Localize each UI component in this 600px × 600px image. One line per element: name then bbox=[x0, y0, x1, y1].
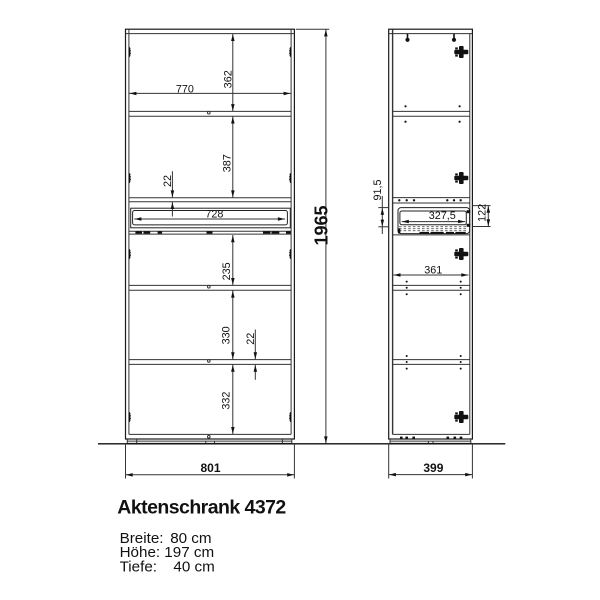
svg-text:770: 770 bbox=[176, 83, 194, 95]
svg-text:728: 728 bbox=[205, 209, 223, 221]
svg-text:801: 801 bbox=[200, 461, 220, 475]
svg-text:332: 332 bbox=[221, 392, 233, 410]
svg-text:122: 122 bbox=[476, 204, 488, 222]
svg-text:235: 235 bbox=[221, 262, 233, 280]
svg-text:361: 361 bbox=[424, 265, 442, 277]
svg-text:91,5: 91,5 bbox=[372, 179, 384, 200]
svg-text:40 cm: 40 cm bbox=[173, 558, 214, 575]
svg-text:22: 22 bbox=[162, 175, 174, 187]
svg-text:Aktenschrank 4372: Aktenschrank 4372 bbox=[117, 497, 286, 519]
svg-text:362: 362 bbox=[223, 70, 235, 88]
svg-text:1965: 1965 bbox=[311, 205, 331, 245]
svg-text:Tiefe:: Tiefe: bbox=[120, 558, 157, 575]
svg-text:387: 387 bbox=[222, 154, 234, 172]
svg-text:22: 22 bbox=[245, 333, 257, 345]
svg-text:330: 330 bbox=[221, 326, 233, 344]
svg-text:399: 399 bbox=[423, 461, 443, 475]
svg-text:327,5: 327,5 bbox=[429, 210, 456, 222]
